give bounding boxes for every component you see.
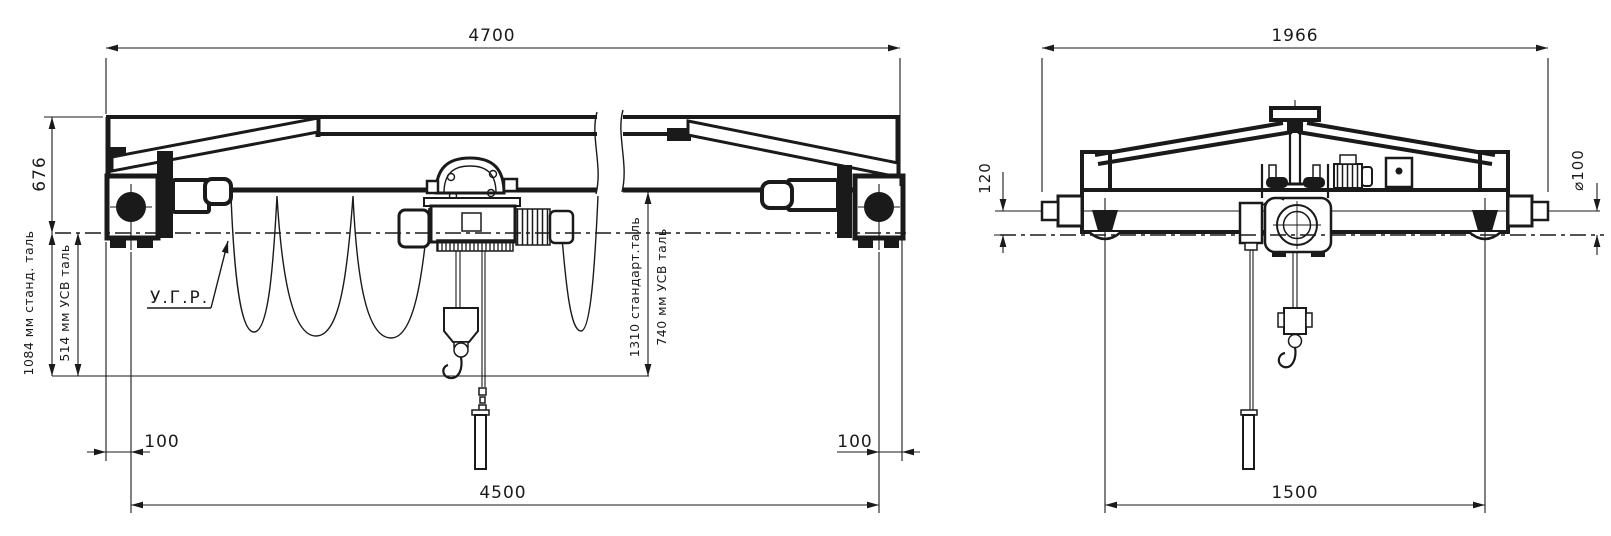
dim-offset-left-label: 100: [144, 432, 179, 452]
dim-wheelbase-label: 1500: [1271, 483, 1318, 503]
end-post-left: [1082, 152, 1110, 190]
drawing-svg: У.Г.Р. 676 1084 мм станд. таль 514 мм УС…: [0, 0, 1611, 536]
dim-hook-std-label: 1084 мм станд. таль: [21, 231, 36, 376]
dim-1310-740: 1310 стандарт.таль 740 мм УСВ таль: [627, 192, 669, 376]
dim-hoist-usv-label: 740 мм УСВ таль: [654, 228, 669, 345]
end-post-right: [1480, 152, 1508, 190]
pendant-feeder-box: [1240, 203, 1262, 243]
pendant-control-side: [1241, 410, 1257, 469]
dim-4500: 4500: [131, 483, 879, 505]
cable-anchor-box: [205, 179, 231, 204]
hoist-rope: [1293, 252, 1297, 308]
dim-120: 120: [976, 162, 1016, 253]
front-view: У.Г.Р. 676 1084 мм станд. таль 514 мм УС…: [21, 26, 920, 513]
monorail-web: [1290, 133, 1300, 184]
pendant-control: [472, 388, 489, 469]
break-line-right: [621, 110, 624, 192]
bridge-frame: [1082, 100, 1508, 190]
hook: [443, 357, 461, 378]
side-view: 1966 120 ⌀100 1500: [976, 26, 1604, 513]
hoist-gearbox: [399, 210, 429, 247]
trolley-wheel-left: [1266, 177, 1288, 188]
rail-level-label: У.Г.Р.: [150, 288, 209, 308]
end-carriage-right: [762, 165, 903, 250]
dim-span-label: 4700: [468, 26, 515, 46]
hoist-ropes: [456, 251, 460, 308]
dim-width-label: 1966: [1271, 26, 1318, 46]
pendant-station: [475, 415, 486, 469]
dim-1500: 1500: [1105, 483, 1485, 505]
trolley-wheel-right: [1303, 177, 1325, 188]
pendant-station: [1243, 415, 1254, 469]
dim-wheel-dia-label: ⌀100: [1569, 149, 1587, 191]
diagonal-brace-left: [112, 118, 318, 171]
pendant-cable: [482, 251, 485, 387]
dim-buffer-height-label: 120: [976, 162, 994, 194]
hook-block-side: [1278, 308, 1312, 367]
rope-drum: [437, 240, 513, 251]
break-line-left: [595, 112, 598, 194]
hoist-drum-side: [1240, 198, 1331, 410]
pendant-cable: [1250, 250, 1253, 410]
leader-arrow: [211, 241, 228, 308]
dim-4700: 4700: [106, 26, 900, 186]
dim-hook-usv-label: 514 мм УСВ таль: [57, 244, 72, 361]
travel-motor: [1334, 164, 1362, 188]
diagonal-brace-right: [688, 121, 898, 177]
crane-technical-drawing: У.Г.Р. 676 1084 мм станд. таль 514 мм УС…: [0, 0, 1611, 536]
hook: [1279, 347, 1296, 367]
buffer-right: [1532, 202, 1548, 220]
dim-offset-right-label: 100: [837, 432, 872, 452]
trolley-housing: [436, 158, 504, 193]
dim-514: 514 мм УСВ таль: [57, 233, 78, 376]
girder-top-flange: [1271, 108, 1319, 120]
dim-100-left: 100: [87, 242, 180, 513]
hoist-motor: [516, 209, 550, 245]
motor-end-cap: [550, 211, 573, 243]
dim-hoist-std-label: 1310 стандарт.таль: [627, 217, 642, 358]
dim-wheel-diameter: ⌀100: [1569, 149, 1597, 255]
dim-wheelbase-label: 4500: [479, 483, 526, 503]
hook-block: [443, 308, 478, 378]
dim-height-label: 676: [30, 156, 50, 191]
dim-100-right: 100: [837, 220, 920, 513]
diagonal-brace-left: [1095, 123, 1292, 164]
buffer-left: [1042, 202, 1058, 220]
